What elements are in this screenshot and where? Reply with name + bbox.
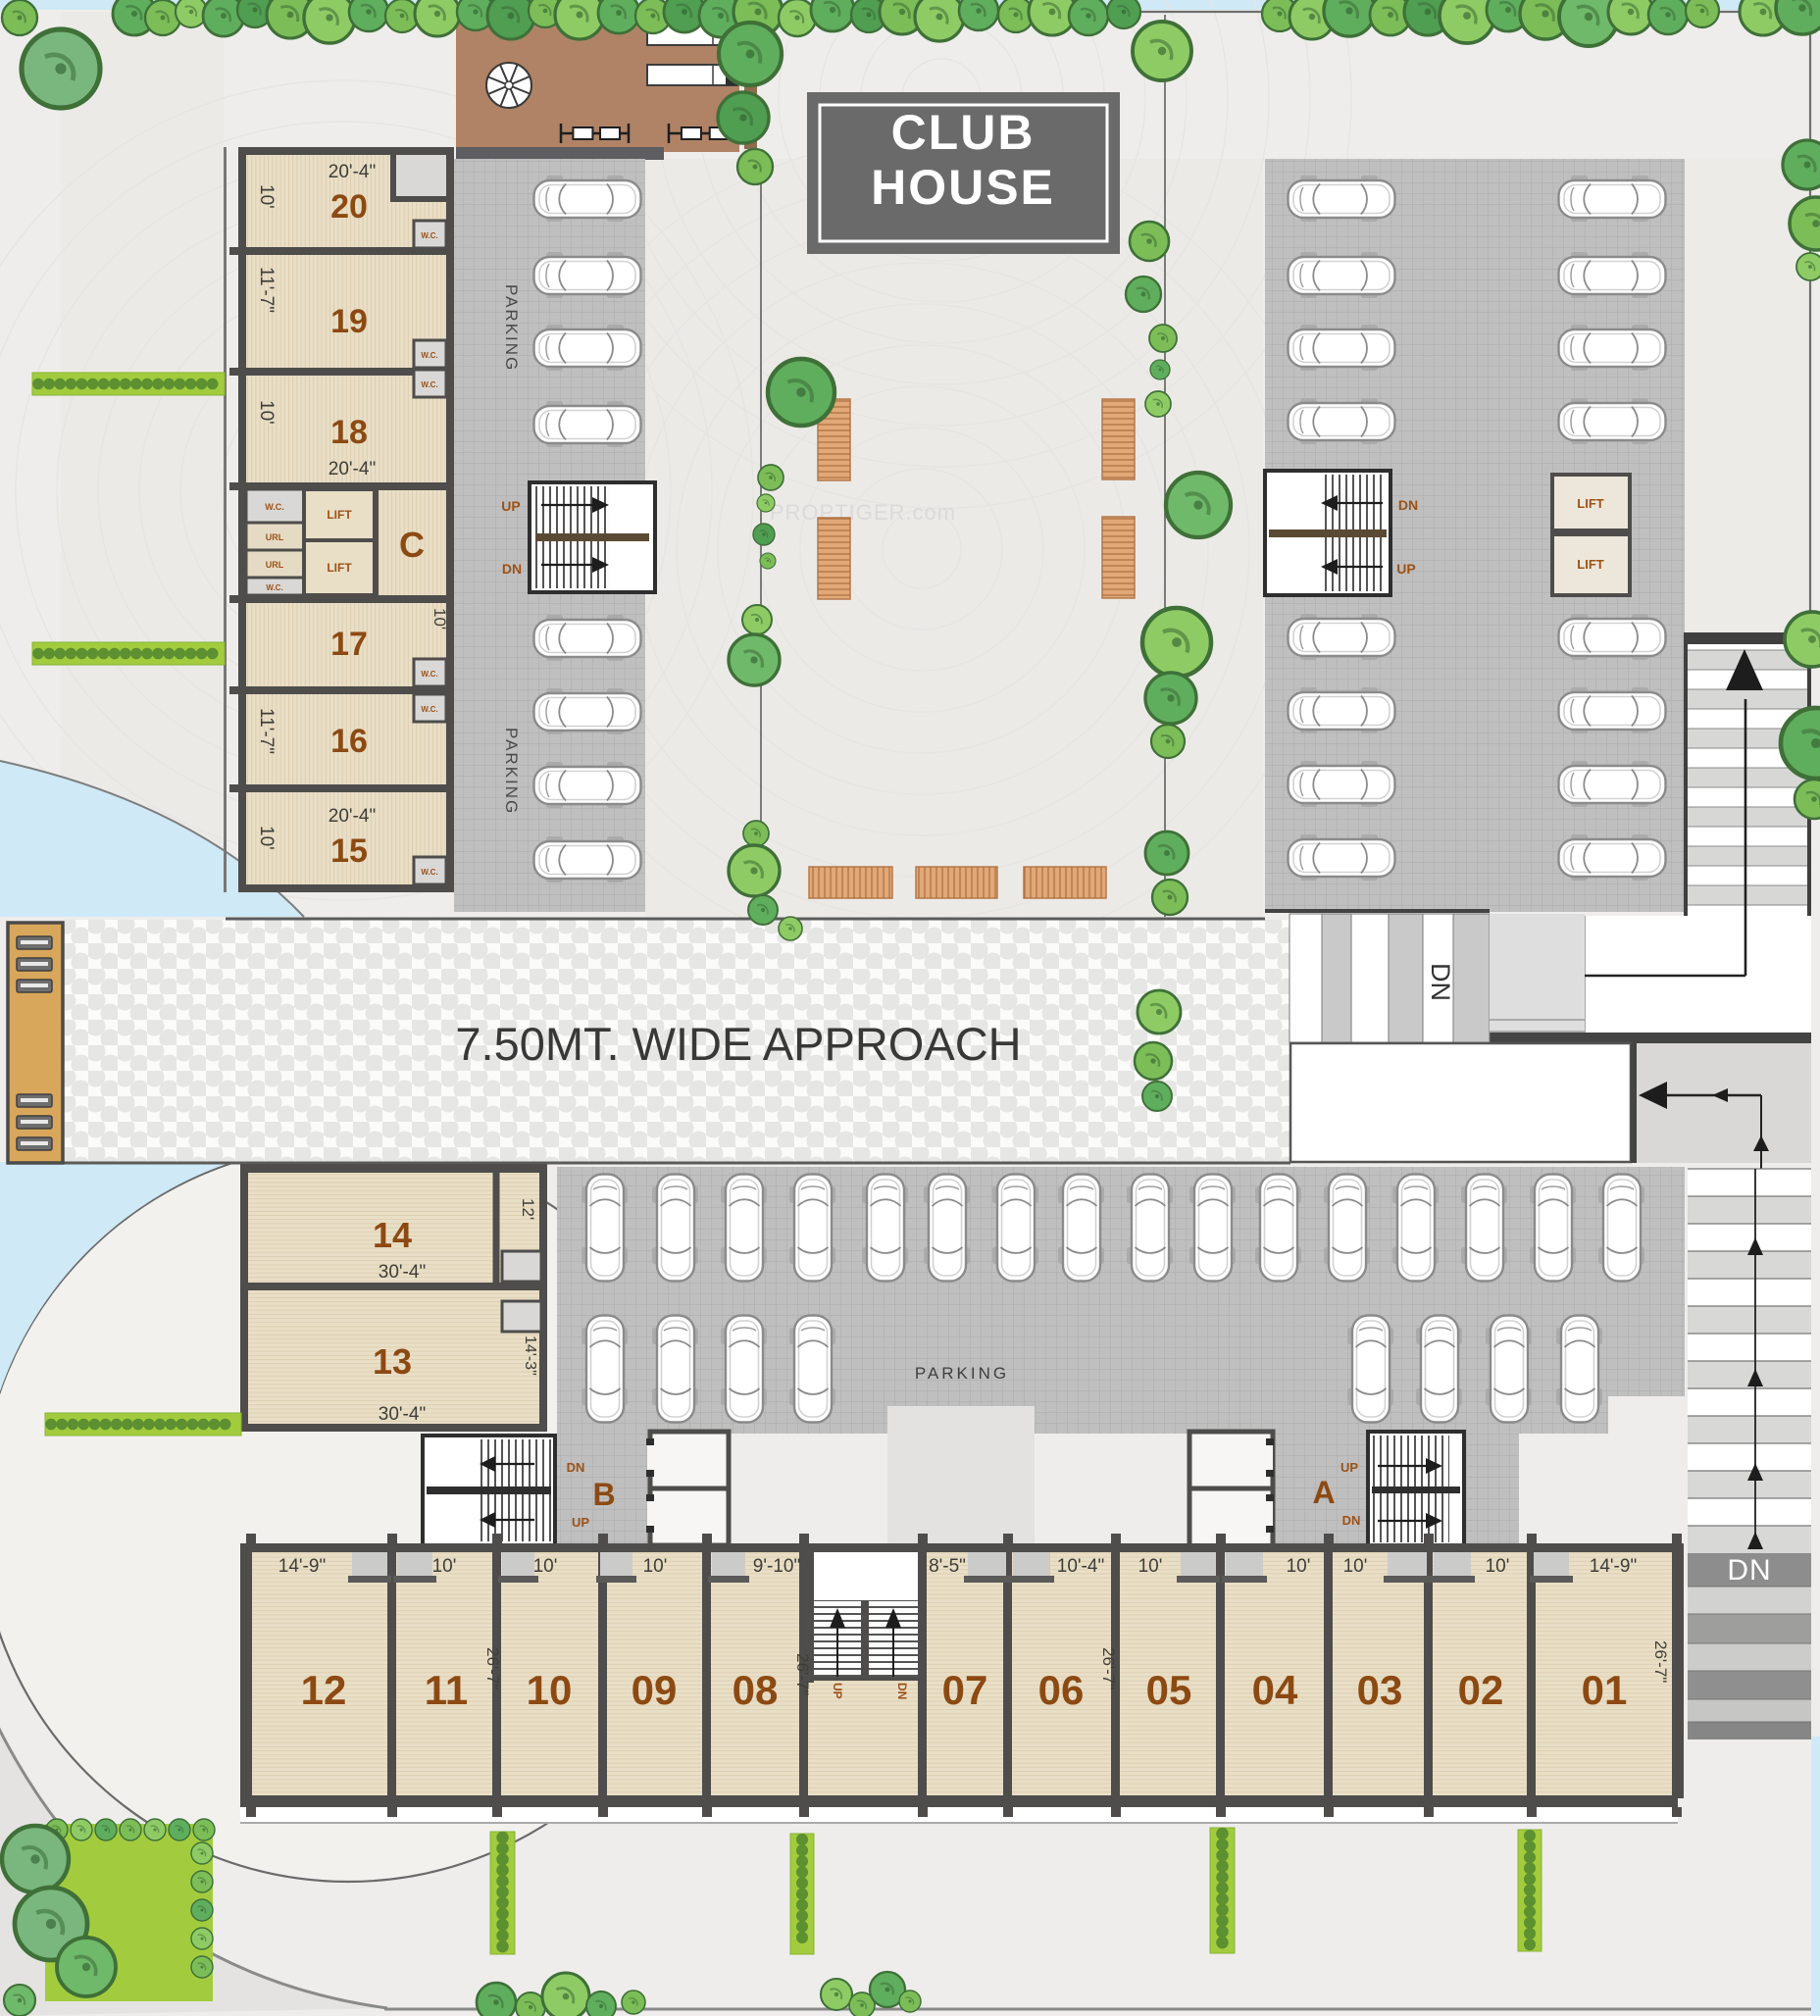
svg-text:20'-4": 20'-4" bbox=[329, 459, 376, 479]
svg-text:06: 06 bbox=[1038, 1667, 1085, 1713]
svg-text:DN: DN bbox=[1426, 963, 1455, 1001]
svg-text:12: 12 bbox=[301, 1667, 347, 1713]
svg-text:DN: DN bbox=[502, 561, 522, 577]
svg-text:09: 09 bbox=[632, 1667, 678, 1713]
svg-text:16: 16 bbox=[330, 723, 368, 760]
svg-text:26'-7": 26'-7" bbox=[793, 1653, 812, 1695]
svg-text:W.C.: W.C. bbox=[421, 231, 437, 240]
svg-text:26'-7": 26'-7" bbox=[1651, 1640, 1670, 1683]
svg-text:10': 10' bbox=[430, 608, 449, 630]
svg-text:03: 03 bbox=[1357, 1667, 1403, 1713]
svg-text:HOUSE: HOUSE bbox=[871, 160, 1055, 215]
svg-text:02: 02 bbox=[1458, 1667, 1504, 1713]
svg-text:15: 15 bbox=[330, 832, 368, 870]
svg-text:DN: DN bbox=[1398, 497, 1418, 513]
svg-text:11: 11 bbox=[425, 1667, 468, 1713]
svg-text:UP: UP bbox=[501, 498, 520, 514]
svg-text:CLUB: CLUB bbox=[891, 105, 1036, 160]
svg-text:30'-4": 30'-4" bbox=[379, 1262, 426, 1283]
svg-text:LIFT: LIFT bbox=[327, 508, 352, 522]
svg-text:10': 10' bbox=[1343, 1556, 1368, 1577]
svg-text:PROPTIGER.com: PROPTIGER.com bbox=[770, 500, 956, 525]
svg-text:UP: UP bbox=[1396, 561, 1415, 577]
svg-text:14'-9": 14'-9" bbox=[278, 1556, 326, 1577]
svg-text:10: 10 bbox=[527, 1667, 573, 1713]
svg-text:B: B bbox=[592, 1477, 615, 1512]
svg-text:A: A bbox=[1312, 1475, 1335, 1510]
svg-text:10': 10' bbox=[1138, 1556, 1163, 1577]
svg-text:LIFT: LIFT bbox=[1577, 557, 1603, 572]
svg-text:01: 01 bbox=[1582, 1667, 1628, 1713]
svg-text:LIFT: LIFT bbox=[327, 561, 352, 575]
svg-text:08: 08 bbox=[733, 1667, 779, 1713]
svg-text:10': 10' bbox=[256, 184, 277, 209]
svg-text:C: C bbox=[399, 525, 425, 565]
svg-text:11'-7": 11'-7" bbox=[256, 708, 277, 754]
svg-text:18: 18 bbox=[330, 414, 368, 451]
svg-text:20: 20 bbox=[330, 188, 368, 226]
svg-text:10'-4": 10'-4" bbox=[1057, 1556, 1104, 1577]
svg-text:DN: DN bbox=[1727, 1554, 1771, 1587]
svg-text:DN: DN bbox=[1342, 1513, 1361, 1528]
svg-text:17: 17 bbox=[330, 626, 368, 663]
svg-text:14'-3": 14'-3" bbox=[522, 1336, 538, 1376]
svg-text:W.C.: W.C. bbox=[421, 380, 437, 389]
svg-text:UP: UP bbox=[831, 1683, 844, 1699]
svg-text:10': 10' bbox=[256, 400, 277, 425]
svg-text:DN: DN bbox=[567, 1460, 585, 1475]
svg-text:PARKING: PARKING bbox=[915, 1364, 1009, 1383]
svg-text:DN: DN bbox=[895, 1683, 909, 1699]
svg-text:10': 10' bbox=[643, 1556, 668, 1577]
svg-text:URL: URL bbox=[266, 560, 284, 570]
svg-text:10': 10' bbox=[533, 1556, 558, 1577]
svg-text:10': 10' bbox=[1287, 1556, 1311, 1577]
svg-text:9'-10": 9'-10" bbox=[753, 1556, 800, 1577]
svg-text:PARKING: PARKING bbox=[502, 728, 521, 815]
svg-text:LIFT: LIFT bbox=[1577, 496, 1603, 511]
svg-text:URL: URL bbox=[266, 532, 284, 542]
svg-text:W.C.: W.C. bbox=[421, 705, 437, 714]
svg-text:26'-7": 26'-7" bbox=[483, 1647, 502, 1689]
svg-text:10': 10' bbox=[1486, 1556, 1510, 1577]
svg-text:10': 10' bbox=[256, 826, 277, 850]
svg-text:10': 10' bbox=[432, 1556, 457, 1577]
svg-text:30'-4": 30'-4" bbox=[379, 1404, 426, 1425]
svg-text:W.C.: W.C. bbox=[421, 351, 437, 360]
svg-text:20'-4": 20'-4" bbox=[329, 162, 376, 182]
svg-text:W.C.: W.C. bbox=[421, 670, 437, 679]
svg-text:19: 19 bbox=[330, 303, 368, 340]
svg-text:8'-5": 8'-5" bbox=[929, 1556, 966, 1577]
svg-text:11'-7": 11'-7" bbox=[256, 267, 277, 313]
svg-text:14'-9": 14'-9" bbox=[1590, 1556, 1637, 1577]
svg-text:12': 12' bbox=[519, 1198, 537, 1220]
svg-text:14: 14 bbox=[373, 1215, 412, 1255]
svg-text:7.50MT. WIDE APPROACH: 7.50MT. WIDE APPROACH bbox=[455, 1018, 1021, 1070]
svg-text:UP: UP bbox=[1340, 1460, 1358, 1475]
svg-text:04: 04 bbox=[1252, 1667, 1298, 1713]
svg-text:13: 13 bbox=[373, 1341, 412, 1382]
svg-text:07: 07 bbox=[942, 1667, 988, 1713]
svg-text:UP: UP bbox=[572, 1515, 589, 1530]
svg-text:20'-4": 20'-4" bbox=[329, 806, 376, 827]
svg-text:PARKING: PARKING bbox=[502, 284, 521, 372]
svg-text:W.C.: W.C. bbox=[265, 502, 284, 512]
svg-text:05: 05 bbox=[1146, 1667, 1192, 1713]
svg-text:W.C.: W.C. bbox=[421, 868, 437, 877]
svg-text:W.C.: W.C. bbox=[266, 583, 282, 592]
svg-text:26'-7": 26'-7" bbox=[1099, 1647, 1118, 1689]
